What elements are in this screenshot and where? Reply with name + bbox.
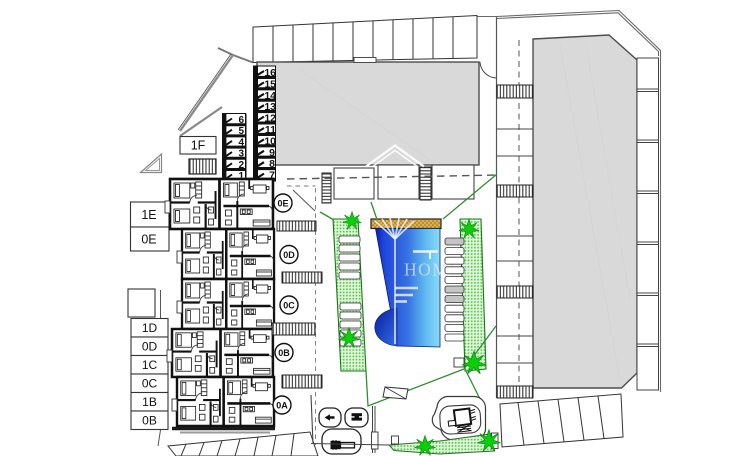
svg-text:0D: 0D [283,250,295,260]
svg-text:2: 2 [238,160,244,171]
svg-text:3: 3 [238,149,244,160]
svg-text:1F: 1F [191,139,206,153]
svg-text:0B: 0B [142,414,157,428]
svg-text:0E: 0E [141,233,156,247]
svg-text:14: 14 [264,90,276,102]
svg-text:1E: 1E [141,208,156,222]
svg-text:6: 6 [238,115,244,126]
svg-text:16: 16 [264,67,276,79]
svg-text:10: 10 [264,135,276,147]
svg-text:5: 5 [238,126,244,137]
svg-text:0C: 0C [283,301,295,311]
svg-text:1B: 1B [142,395,157,409]
svg-text:15: 15 [264,78,276,90]
svg-text:12: 12 [264,113,276,125]
svg-text:9: 9 [269,147,275,159]
svg-text:13: 13 [264,101,276,113]
svg-text:0C: 0C [142,377,158,391]
svg-text:4: 4 [238,137,244,148]
svg-text:8: 8 [269,158,275,170]
svg-text:0B: 0B [278,348,290,358]
svg-text:0E: 0E [277,199,288,209]
svg-text:11: 11 [265,124,276,136]
svg-text:0A: 0A [276,401,288,411]
svg-text:0D: 0D [142,340,158,354]
svg-text:1C: 1C [142,358,158,372]
svg-text:1D: 1D [142,321,158,335]
